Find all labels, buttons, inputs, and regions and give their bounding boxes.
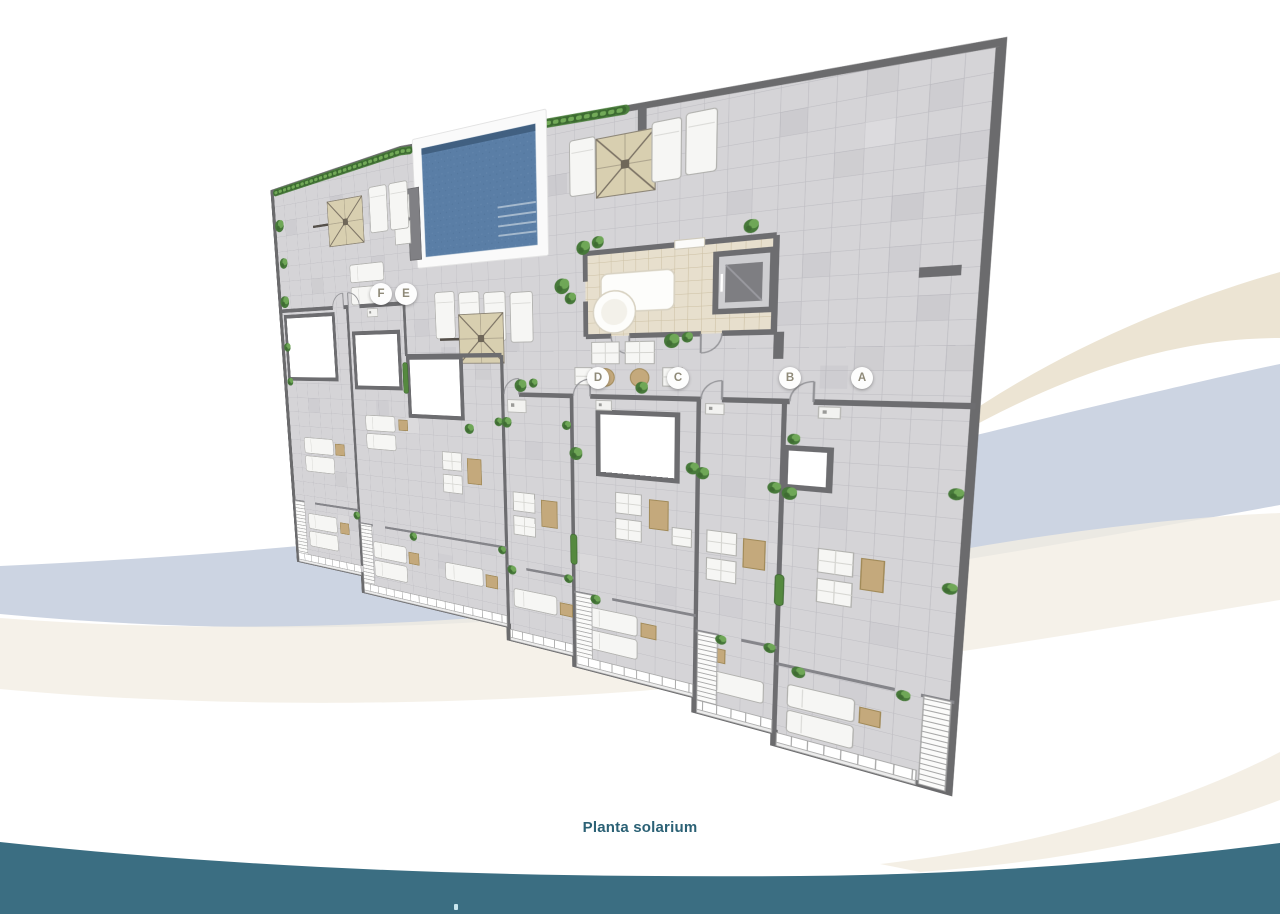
skylight-box bbox=[784, 448, 830, 491]
teal-wave bbox=[0, 842, 1280, 914]
sun-lounger-icon bbox=[510, 291, 533, 342]
stairs-icon bbox=[918, 696, 951, 791]
sun-lounger-icon bbox=[389, 180, 409, 230]
skylight-box bbox=[408, 357, 463, 418]
ac-unit-icon bbox=[596, 400, 612, 410]
parasol-icon bbox=[327, 196, 364, 247]
parasol-pole bbox=[440, 339, 459, 340]
skylight-box bbox=[354, 332, 402, 389]
unit-marker-c: C bbox=[667, 367, 689, 389]
plan-caption: Planta solarium bbox=[583, 819, 698, 836]
sun-lounger-icon bbox=[686, 108, 718, 176]
parasol-icon bbox=[596, 128, 655, 198]
swimming-pool bbox=[412, 109, 548, 268]
elevator bbox=[715, 249, 773, 311]
ac-unit-icon bbox=[705, 403, 724, 414]
skylight-box bbox=[285, 314, 337, 379]
sun-lounger-icon bbox=[569, 136, 595, 197]
sun-lounger-icon bbox=[652, 117, 682, 183]
ac-unit-icon bbox=[508, 400, 527, 413]
ac-unit-icon bbox=[818, 407, 840, 419]
page: F E D C B A Planta solarium bbox=[0, 0, 1280, 914]
sun-lounger-icon bbox=[369, 184, 389, 233]
unit-marker-b: B bbox=[779, 367, 801, 389]
cropped-logo-fragment bbox=[454, 904, 458, 910]
unit-marker-a: A bbox=[851, 367, 873, 389]
unit-marker-d: D bbox=[587, 367, 609, 389]
unit-marker-e: E bbox=[395, 283, 417, 305]
unit-marker-f: F bbox=[370, 283, 392, 305]
skylight-box bbox=[598, 412, 678, 481]
sun-lounger-icon bbox=[435, 291, 456, 339]
sun-lounger-icon bbox=[350, 262, 384, 283]
ac-unit-icon bbox=[367, 308, 378, 317]
